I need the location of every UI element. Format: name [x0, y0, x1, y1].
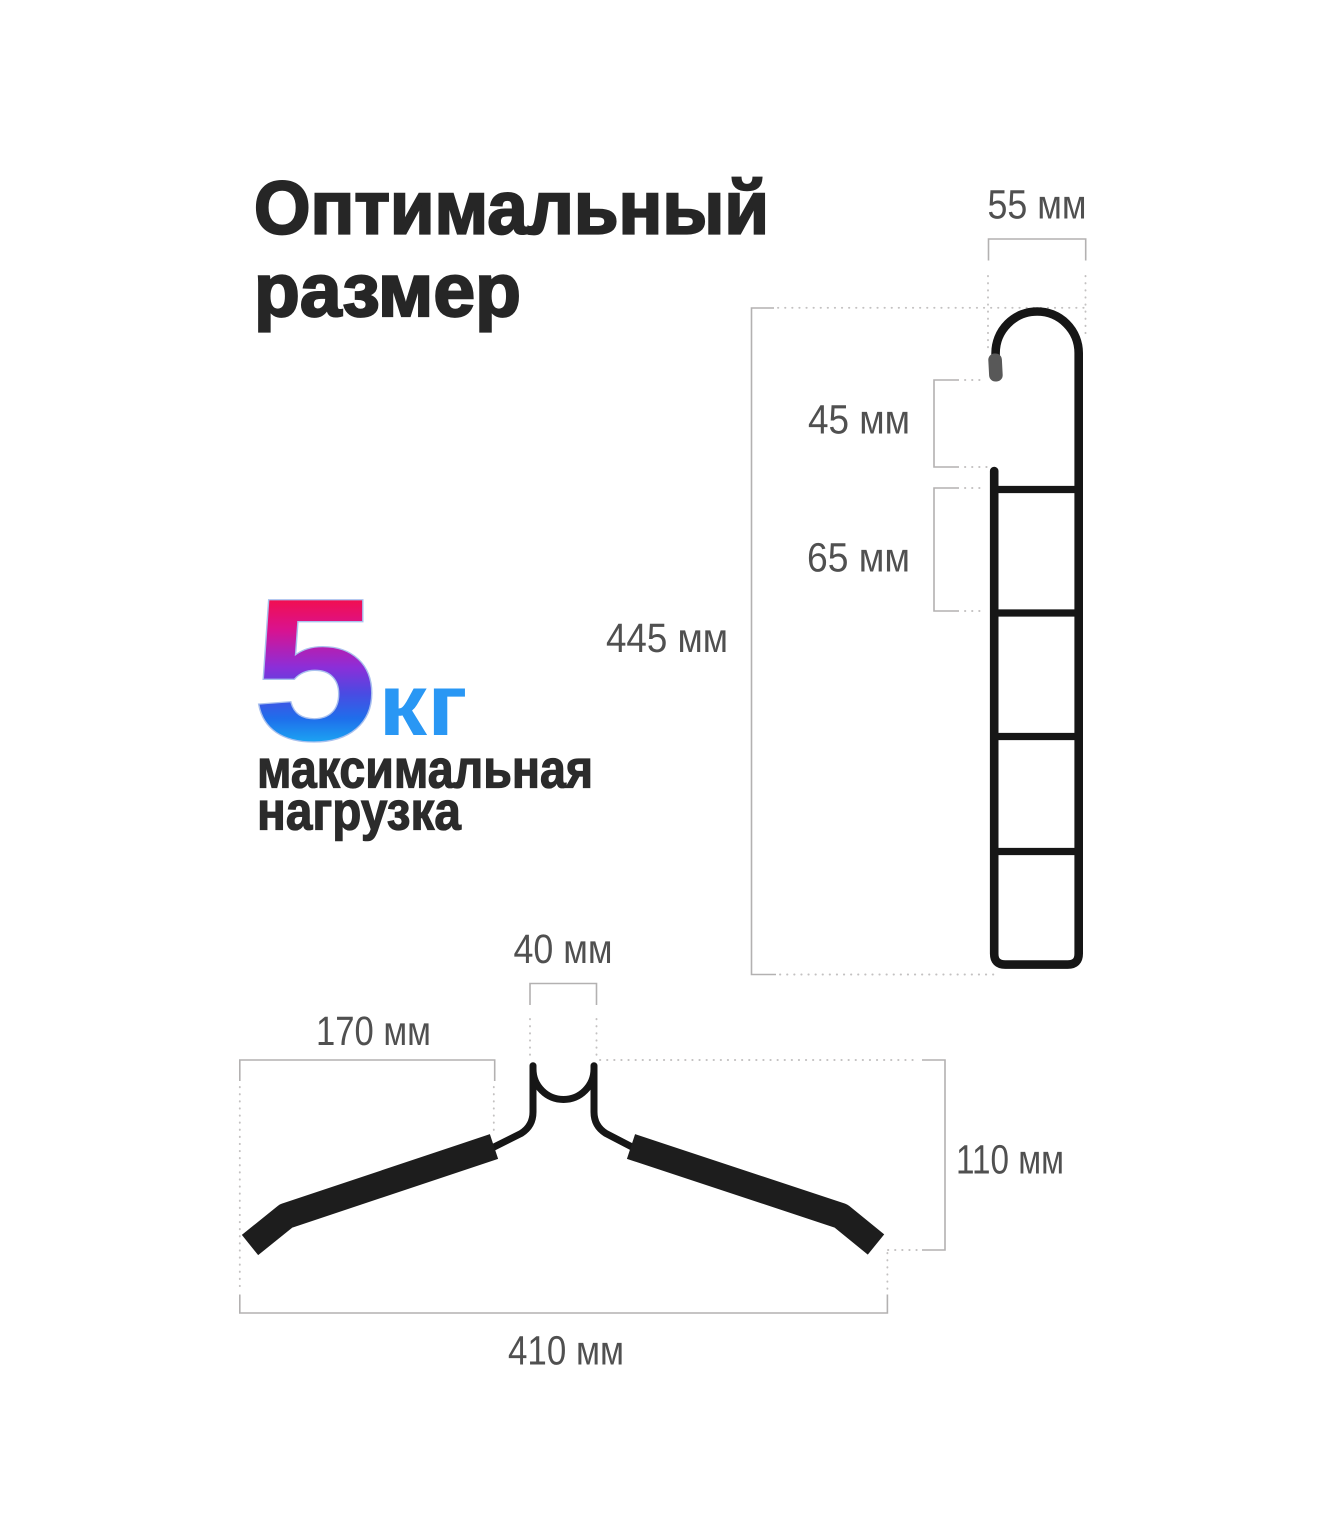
svg-text:40 мм: 40 мм: [514, 926, 613, 972]
svg-text:65 мм: 65 мм: [807, 535, 910, 581]
svg-text:445 мм: 445 мм: [606, 615, 728, 661]
svg-text:110 мм: 110 мм: [956, 1137, 1064, 1183]
svg-text:размер: размер: [254, 248, 521, 332]
svg-text:нагрузка: нагрузка: [257, 782, 462, 842]
svg-text:55 мм: 55 мм: [988, 182, 1087, 228]
svg-text:Оптимальный: Оптимальный: [254, 166, 769, 250]
svg-text:170 мм: 170 мм: [316, 1008, 431, 1054]
svg-text:45 мм: 45 мм: [808, 397, 910, 443]
svg-text:410 мм: 410 мм: [508, 1328, 624, 1374]
